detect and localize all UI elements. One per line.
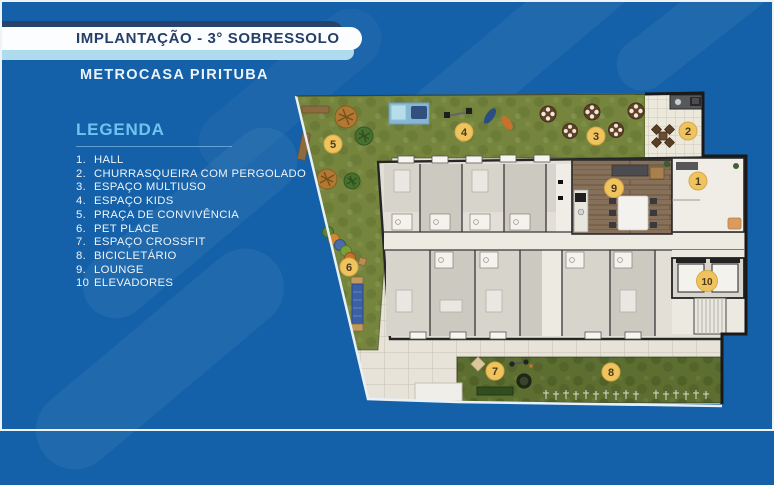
hall-room	[672, 158, 744, 232]
legend-item-espaco-kids: 4.ESPAÇO KIDS	[76, 195, 306, 209]
elevators	[672, 250, 744, 334]
armchair-icon	[728, 218, 741, 229]
project-name: METROCASA PIRITUBA	[80, 67, 269, 83]
legend-item-bicicletario: 8.BICICLETÁRIO	[76, 250, 306, 264]
bush-icon	[355, 127, 373, 145]
pet-ramp-icon	[351, 277, 363, 331]
marker-9-lounge: 9	[605, 179, 624, 198]
legend-item-praca-convivencia: 5.PRAÇA DE CONVIVÊNCIA	[76, 209, 306, 223]
picnic-table-icon	[563, 124, 578, 139]
legend-item-elevadores: 10ELEVADORES	[76, 277, 306, 291]
svg-text:3: 3	[593, 131, 599, 143]
site-plan: 1 2 3 4 5 6 7 8 9 10	[283, 84, 771, 424]
marker-4-espaco-kids: 4	[455, 123, 473, 141]
legend-heading: LEGENDA	[76, 120, 165, 140]
marker-8-bicicletario: 8	[602, 363, 620, 381]
lounge-room	[572, 160, 672, 234]
tree-icon	[317, 169, 337, 189]
site-plan-svg: 1 2 3 4 5 6 7 8 9 10	[283, 84, 771, 424]
marker-7-espaco-crossfit: 7	[486, 362, 504, 380]
legend-list: 1.HALL 2.CHURRASQUEIRA COM PERGOLADO 3.E…	[76, 154, 306, 291]
tree-icon	[335, 106, 357, 128]
svg-text:8: 8	[608, 367, 614, 379]
legend-item-churrasqueira: 2.CHURRASQUEIRA COM PERGOLADO	[76, 168, 306, 182]
marker-10-elevadores: 10	[697, 271, 718, 292]
plant-icon	[664, 161, 671, 168]
svg-text:2: 2	[685, 126, 691, 138]
marker-6-pet-place: 6	[340, 258, 358, 276]
bench-icon	[302, 106, 329, 113]
picnic-table-icon	[628, 103, 644, 119]
svg-text:1: 1	[695, 176, 701, 188]
svg-text:6: 6	[346, 262, 352, 274]
legend-item-lounge: 9.LOUNGE	[76, 264, 306, 278]
svg-text:7: 7	[492, 366, 498, 378]
sofa-icon	[612, 165, 648, 176]
svg-text:5: 5	[330, 139, 336, 151]
page-title: IMPLANTAÇÃO - 3° SOBRESSOLO	[2, 27, 362, 50]
svg-text:10: 10	[701, 277, 713, 288]
marker-3-espaco-multiuso: 3	[587, 127, 605, 145]
picnic-table-icon	[584, 104, 600, 120]
tire-icon	[518, 375, 530, 387]
stairs-icon	[694, 298, 726, 334]
legend-item-espaco-crossfit: 7.ESPAÇO CROSSFIT	[76, 236, 306, 250]
legend-item-hall: 1.HALL	[76, 154, 306, 168]
svg-text:4: 4	[461, 127, 468, 139]
legend-underline	[76, 146, 232, 147]
grill-icon	[690, 97, 701, 106]
legend-item-espaco-multiuso: 3.ESPAÇO MULTIUSO	[76, 181, 306, 195]
svg-text:9: 9	[611, 183, 617, 195]
legend-item-pet-place: 6.PET PLACE	[76, 223, 306, 237]
picnic-table-icon	[609, 123, 624, 138]
dining-table-icon	[618, 196, 648, 230]
page-title-text: IMPLANTAÇÃO - 3° SOBRESSOLO	[76, 30, 340, 47]
bush-icon	[344, 173, 360, 189]
picnic-table-icon	[540, 106, 556, 122]
crossfit-bench-icon	[477, 387, 513, 395]
marker-1-hall: 1	[689, 172, 707, 190]
sink-icon	[675, 99, 682, 106]
marker-2-churrasqueira: 2	[679, 122, 697, 140]
marker-5-praca-convivencia: 5	[324, 135, 342, 153]
bike-crossfit-strip	[415, 357, 722, 403]
